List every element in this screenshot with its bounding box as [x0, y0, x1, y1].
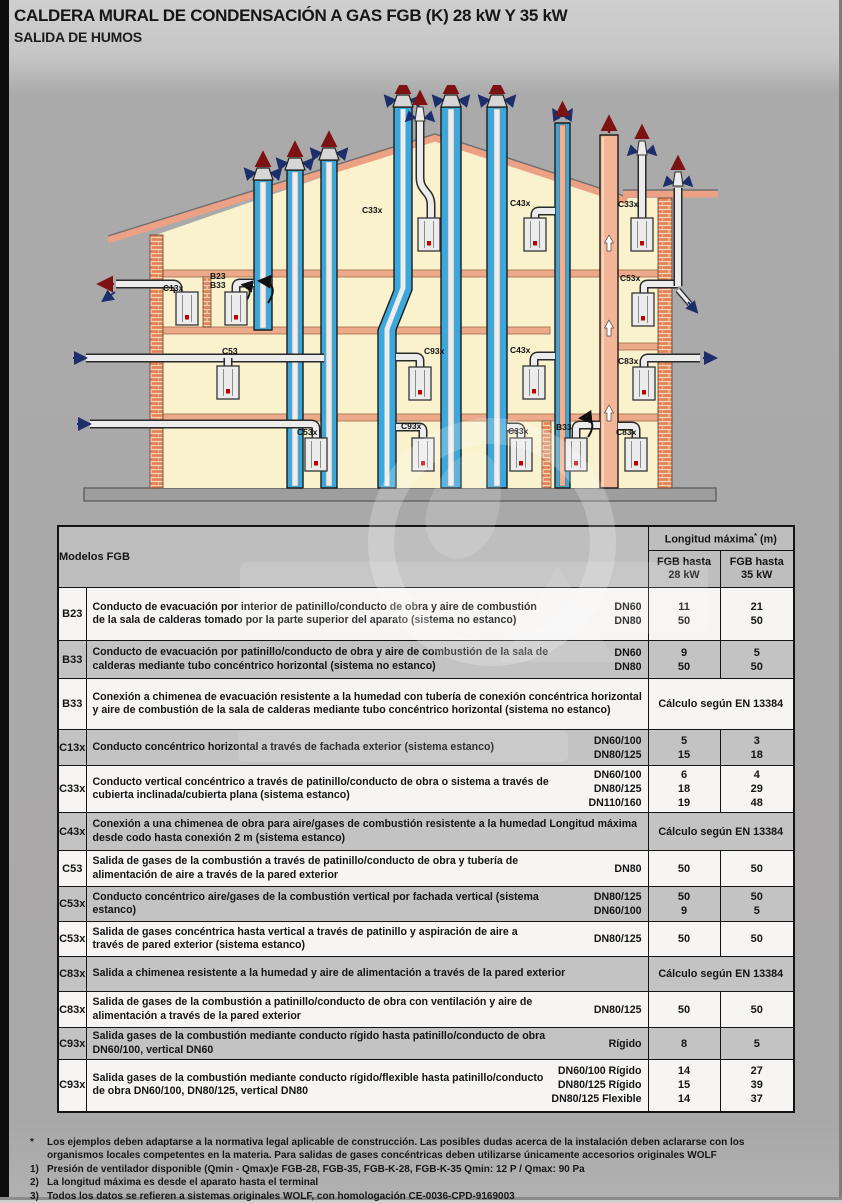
- description-cell: Conexión a una chimenea de obra para air…: [86, 813, 648, 851]
- value-cell-v28: 50: [648, 992, 720, 1028]
- footnote-marker: 2): [30, 1176, 47, 1189]
- table-row-c93x-12: C93xSalida gases de la combustión median…: [58, 1060, 794, 1112]
- unit-label-c43x_mid: C43x: [510, 345, 531, 355]
- boiler-unit-c93x_bot: [412, 438, 434, 471]
- table-row-c53x-7: C53xConducto concéntrico aire/gases de l…: [58, 887, 794, 922]
- unit-label-b33_top: B33: [210, 280, 226, 290]
- right-brick-wall: [658, 198, 672, 488]
- value-cell-v28: 950: [648, 641, 720, 679]
- row-description: Salida a chimenea resistente a la humeda…: [93, 967, 644, 981]
- boiler-unit-c33x_top: [418, 218, 440, 251]
- table-row-b23-0: B23Conducto de evacuación por interior d…: [58, 588, 794, 641]
- boiler-unit-c53x_bot: [305, 438, 327, 471]
- dn-sizes: DN60/100DN80/125DN110/160: [556, 768, 644, 810]
- unit-label-c33x_top: C33x: [362, 205, 383, 215]
- table-row-c43x-5: C43xConexión a una chimenea de obra para…: [58, 813, 794, 851]
- boiler-unit-c13x: [176, 292, 198, 325]
- description-cell: Conexión a chimenea de evacuación resist…: [86, 679, 648, 730]
- description-cell: Conducto vertical concéntrico a través d…: [86, 766, 648, 813]
- model-cell: C53: [58, 851, 86, 887]
- footnote-item: 1)Presión de ventilador disponible (Qmin…: [30, 1163, 792, 1176]
- dn-sizes: DN80/125: [556, 1003, 644, 1017]
- row-description: Salida de gases concéntrica hasta vertic…: [93, 926, 552, 953]
- description-cell: Conducto de evacuación por patinillo/con…: [86, 641, 648, 679]
- description-cell: Salida de gases de la combustión a patin…: [86, 992, 648, 1028]
- boiler-unit-c43x_mid: [523, 366, 545, 399]
- footnote-text: Todos los datos se refieren a sistemas o…: [47, 1190, 792, 1203]
- boiler-unit-b23: [225, 292, 247, 325]
- length-header-unit: (m): [757, 534, 777, 546]
- table-row-c83x-9: C83xSalida a chimenea resistente a la hu…: [58, 957, 794, 992]
- title-block: CALDERA MURAL DE CONDENSACIÓN A GAS FGB …: [14, 6, 814, 45]
- value-cell-v35: 550: [720, 641, 794, 679]
- unit-label-c53: C53: [222, 346, 238, 356]
- model-cell: B23: [58, 588, 86, 641]
- model-cell: C83x: [58, 957, 86, 992]
- unit-label-b33_bot: B33: [556, 422, 572, 432]
- description-cell: Salida gases de la combustión mediante c…: [86, 1028, 648, 1060]
- footnote-marker: *: [30, 1136, 47, 1163]
- value-cell-v35: 2150: [720, 588, 794, 641]
- unit-label-c13x: C13x: [163, 283, 184, 293]
- dn-sizes: DN60/100DN80/125: [556, 734, 644, 762]
- row-description: Salida de gases de la combustión a patin…: [93, 996, 552, 1023]
- value-cell-v35: 273937: [720, 1060, 794, 1112]
- value-cell-v28: 509: [648, 887, 720, 922]
- footnote-marker: 1): [30, 1163, 47, 1176]
- col-header-28kw: FGB hasta28 kW: [648, 551, 720, 588]
- boiler-unit-c93x_mid: [409, 367, 431, 400]
- boiler-unit-b33_bot: [565, 438, 587, 471]
- dn-sizes: DN60/100 RígidoDN80/125 RígidoDN80/125 F…: [551, 1064, 643, 1106]
- footnote-marker: 3): [30, 1190, 47, 1203]
- unit-label-c33x_bot: C33x: [508, 426, 529, 436]
- model-cell: C53x: [58, 887, 86, 922]
- value-cell-v35: 42948: [720, 766, 794, 813]
- table-row-c53x-8: C53xSalida de gases concéntrica hasta ve…: [58, 922, 794, 957]
- page-title: CALDERA MURAL DE CONDENSACIÓN A GAS FGB …: [14, 6, 814, 26]
- table-row-c83x-10: C83xSalida de gases de la combustión a p…: [58, 992, 794, 1028]
- model-cell: B33: [58, 679, 86, 730]
- model-cell: B33: [58, 641, 86, 679]
- unit-label-c53x_bot: C53x: [297, 427, 318, 437]
- table-row-c93x-11: C93xSalida gases de la combustión median…: [58, 1028, 794, 1060]
- boiler-unit-c53x_right: [632, 293, 654, 326]
- footnote-text: Los ejemplos deben adaptarse a la normat…: [47, 1136, 792, 1163]
- unit-label-c93x_mid: C93x: [424, 346, 445, 356]
- unit-label-c53x_right: C53x: [620, 273, 641, 283]
- boiler-unit-c43x_top: [524, 218, 546, 251]
- unit-label-c33x_tr: C33x: [618, 199, 639, 209]
- model-cell: C93x: [58, 1060, 86, 1112]
- boiler-unit-c33x_tr: [631, 218, 653, 251]
- footnote-item: *Los ejemplos deben adaptarse a la norma…: [30, 1136, 792, 1163]
- value-cell-v28: 515: [648, 730, 720, 766]
- value-cell-v35: 5: [720, 1028, 794, 1060]
- col-header-35kw: FGB hasta35 kW: [720, 551, 794, 588]
- table-row-b33-2: B33Conexión a chimenea de evacuación res…: [58, 679, 794, 730]
- footnotes: *Los ejemplos deben adaptarse a la norma…: [30, 1136, 792, 1203]
- models-header: Modelos FGB: [58, 526, 648, 588]
- footnote-item: 3)Todos los datos se refieren a sistemas…: [30, 1190, 792, 1203]
- value-cell-v35: 50: [720, 851, 794, 887]
- unit-label-c83x_mid: C83x: [618, 356, 639, 366]
- row-description: Conducto concéntrico horizontal a través…: [93, 741, 552, 755]
- description-cell: Conducto concéntrico aire/gases de la co…: [86, 887, 648, 922]
- value-cell-v28: 1150: [648, 588, 720, 641]
- page-left-edge: [0, 0, 9, 1200]
- model-cell: C33x: [58, 766, 86, 813]
- dn-sizes: DN60DN80: [556, 646, 644, 674]
- row-description: Salida de gases de la combustión a travé…: [93, 855, 552, 882]
- description-cell: Salida a chimenea resistente a la humeda…: [86, 957, 648, 992]
- unit-label-c43x_top: C43x: [510, 198, 531, 208]
- value-cell-v28: 8: [648, 1028, 720, 1060]
- row-description: Conducto de evacuación por interior de p…: [93, 601, 552, 628]
- row-description: Conducto de evacuación por patinillo/con…: [93, 646, 552, 673]
- boiler-unit-c83x_br: [625, 438, 647, 471]
- description-cell: Salida gases de la combustión mediante c…: [86, 1060, 648, 1112]
- row-description: Conducto vertical concéntrico a través d…: [93, 776, 552, 803]
- table-row-c33x-4: C33xConducto vertical concéntrico a trav…: [58, 766, 794, 813]
- value-cell-v28: 50: [648, 851, 720, 887]
- length-header-label: Longitud máxima: [665, 534, 754, 546]
- value-cell-v28: 50: [648, 922, 720, 957]
- row-description: Conexión a chimenea de evacuación resist…: [93, 691, 644, 718]
- value-cell-v35: 50: [720, 922, 794, 957]
- row-description: Salida gases de la combustión mediante c…: [93, 1072, 548, 1099]
- value-cell-v35: 505: [720, 887, 794, 922]
- page-subtitle: SALIDA DE HUMOS: [14, 29, 814, 45]
- dn-sizes: Rígido: [556, 1037, 644, 1051]
- footnote-text: Presión de ventilador disponible (Qmin -…: [47, 1163, 792, 1176]
- calc-cell: Cálculo según EN 13384: [648, 679, 794, 730]
- value-cell-v35: 50: [720, 992, 794, 1028]
- description-cell: Salida de gases concéntrica hasta vertic…: [86, 922, 648, 957]
- footnote-text: La longitud máxima es desde el aparato h…: [47, 1176, 792, 1189]
- building-base: [84, 488, 716, 501]
- model-cell: C93x: [58, 1028, 86, 1060]
- boiler-unit-c33x_bot: [510, 438, 532, 471]
- calc-cell: Cálculo según EN 13384: [648, 813, 794, 851]
- flue-length-table: Modelos FGB Longitud máxima* (m) FGB has…: [57, 525, 795, 1113]
- calc-cell: Cálculo según EN 13384: [648, 957, 794, 992]
- boiler-unit-c83x_mid: [633, 367, 655, 400]
- dn-sizes: DN60DN80: [556, 600, 644, 628]
- description-cell: Salida de gases de la combustión a travé…: [86, 851, 648, 887]
- footnote-item: 2)La longitud máxima es desde el aparato…: [30, 1176, 792, 1189]
- value-cell-v28: 141514: [648, 1060, 720, 1112]
- unit-label-c93x_bot: C93x: [401, 421, 422, 431]
- dn-sizes: DN80: [556, 862, 644, 876]
- model-cell: C83x: [58, 992, 86, 1028]
- dn-sizes: DN80/125: [556, 932, 644, 946]
- model-cell: C13x: [58, 730, 86, 766]
- model-cell: C53x: [58, 922, 86, 957]
- flue-options-diagram: C13xB23B33C33xC43xC33xC53C53xC93xC43xC83…: [60, 85, 720, 515]
- unit-label-c83x_br: C83x: [616, 427, 637, 437]
- dn-sizes: DN80/125DN60/100: [556, 890, 644, 918]
- table-row-c53-6: C53Salida de gases de la combustión a tr…: [58, 851, 794, 887]
- row-description: Salida gases de la combustión mediante c…: [93, 1030, 552, 1057]
- boiler-unit-c53: [217, 366, 239, 399]
- value-cell-v28: 61819: [648, 766, 720, 813]
- description-cell: Conducto de evacuación por interior de p…: [86, 588, 648, 641]
- row-description: Conexión a una chimenea de obra para air…: [93, 818, 644, 845]
- row-description: Conducto concéntrico aire/gases de la co…: [93, 891, 552, 918]
- table-row-c13x-3: C13xConducto concéntrico horizontal a tr…: [58, 730, 794, 766]
- model-cell: C43x: [58, 813, 86, 851]
- length-header: Longitud máxima* (m): [648, 526, 794, 551]
- value-cell-v35: 318: [720, 730, 794, 766]
- description-cell: Conducto concéntrico horizontal a través…: [86, 730, 648, 766]
- table-row-b33-1: B33Conducto de evacuación por patinillo/…: [58, 641, 794, 679]
